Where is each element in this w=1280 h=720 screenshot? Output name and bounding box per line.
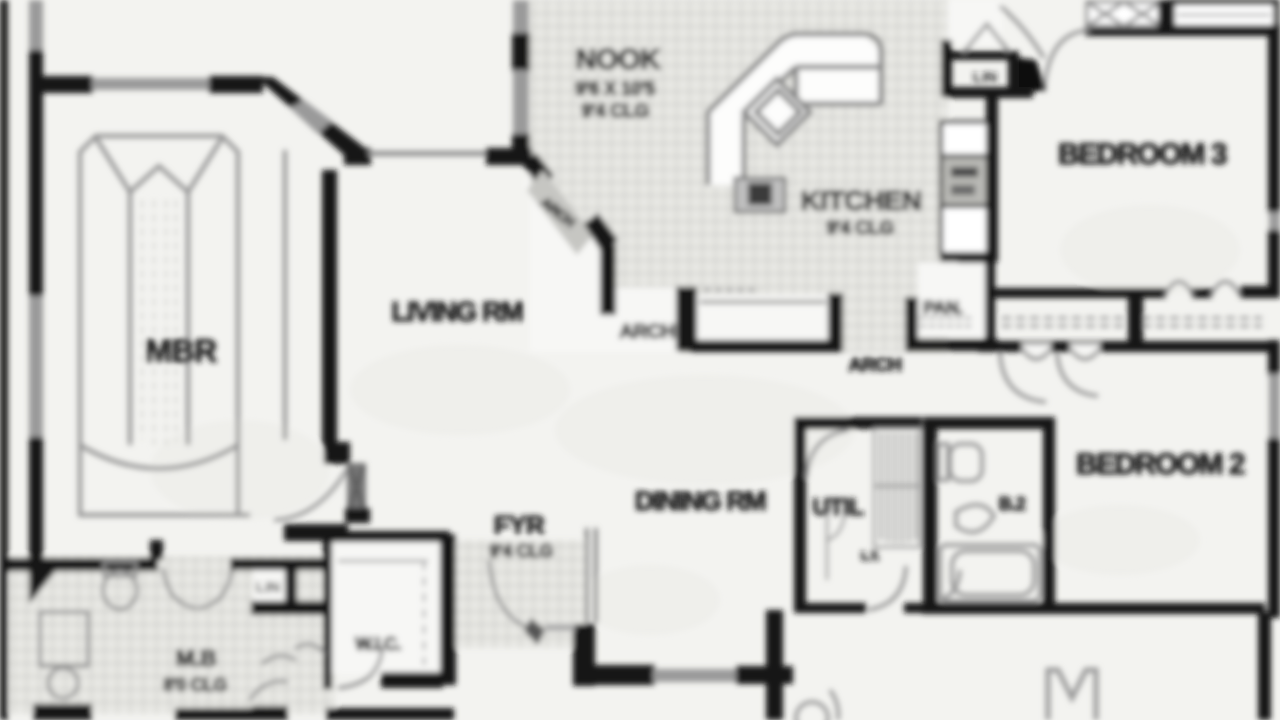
svg-text:ARCH: ARCH: [619, 321, 675, 343]
svg-text:KITCHEN: KITCHEN: [801, 185, 922, 216]
svg-text:BEDROOM 2: BEDROOM 2: [1076, 448, 1245, 481]
svg-text:FYR: FYR: [494, 510, 545, 540]
svg-text:M.B: M.B: [176, 645, 217, 671]
svg-text:NOOK: NOOK: [576, 44, 662, 76]
svg-text:BEDROOM 3: BEDROOM 3: [1058, 138, 1227, 171]
svg-text:B.2: B.2: [999, 494, 1026, 514]
svg-text:ARCH: ARCH: [849, 355, 902, 376]
svg-text:9'4 CLG: 9'4 CLG: [581, 101, 649, 122]
svg-text:L.T.: L.T.: [861, 549, 879, 563]
svg-text:LIVING RM: LIVING RM: [391, 296, 522, 327]
svg-text:9'4 CLG: 9'4 CLG: [489, 541, 553, 561]
svg-text:LIN: LIN: [973, 69, 997, 86]
svg-text:W.I.C.: W.I.C.: [355, 634, 401, 654]
svg-text:MBR: MBR: [145, 333, 217, 369]
svg-text:LIN: LIN: [256, 579, 280, 596]
svg-text:9'4 CLG: 9'4 CLG: [826, 218, 894, 239]
svg-text:UTIL: UTIL: [812, 494, 863, 521]
svg-text:9'6 X 10'5: 9'6 X 10'5: [575, 79, 656, 100]
svg-text:8'0 CLG: 8'0 CLG: [163, 675, 227, 695]
svg-text:PAN.: PAN.: [923, 298, 963, 318]
svg-text:DINING RM: DINING RM: [635, 486, 766, 516]
